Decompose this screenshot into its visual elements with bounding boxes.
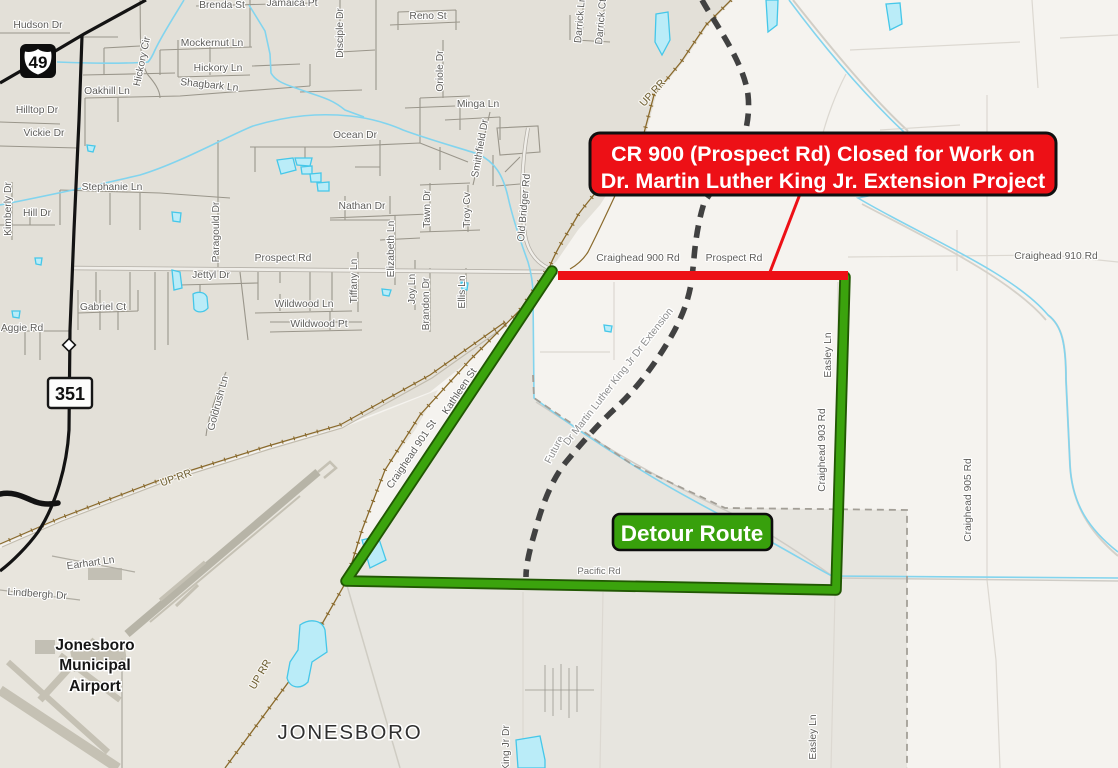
svg-text:Easley Ln: Easley Ln [823,332,834,377]
svg-text:Oriole Dr: Oriole Dr [435,50,446,92]
svg-text:Prospect Rd: Prospect Rd [255,253,312,264]
svg-text:Brandon Dr: Brandon Dr [421,277,432,330]
svg-text:Detour Route: Detour Route [621,521,764,546]
svg-text:Paragould Dr: Paragould Dr [211,201,222,262]
svg-text:Jamaica Pt: Jamaica Pt [267,0,318,9]
svg-text:Nathan Dr: Nathan Dr [339,201,387,212]
svg-text:Tiffany Ln: Tiffany Ln [349,258,360,303]
svg-text:Reno St: Reno St [409,11,446,22]
svg-text:Dr. Martin Luther King Jr. Ext: Dr. Martin Luther King Jr. Extension Pro… [601,169,1045,193]
svg-text:Hilltop Dr: Hilltop Dr [16,105,59,116]
svg-text:Aggie Rd: Aggie Rd [1,323,44,334]
svg-text:Tawn Dr: Tawn Dr [422,190,433,228]
svg-text:Elizabeth Ln: Elizabeth Ln [386,220,397,277]
svg-text:Pacific Rd: Pacific Rd [577,566,620,577]
svg-text:Craighead 910 Rd: Craighead 910 Rd [1014,251,1098,262]
svg-text:Wildwood Ln: Wildwood Ln [275,299,334,310]
svg-text:Prospect Rd: Prospect Rd [706,253,763,264]
svg-text:Joy Ln: Joy Ln [407,274,418,305]
svg-text:Hill Dr: Hill Dr [23,208,52,219]
svg-text:Hudson Dr: Hudson Dr [13,20,63,31]
svg-text:Mockernut Ln: Mockernut Ln [181,38,244,49]
svg-text:Jonesboro: Jonesboro [55,637,134,654]
svg-text:JONESBORO: JONESBORO [278,721,423,744]
svg-text:Kimberly Dr: Kimberly Dr [3,182,14,236]
svg-text:CR 900 (Prospect Rd) Closed fo: CR 900 (Prospect Rd) Closed for Work on [611,142,1035,166]
svg-text:Ellis Ln: Ellis Ln [457,275,468,308]
svg-text:Troy Cv: Troy Cv [462,191,473,228]
svg-text:351: 351 [55,384,85,404]
svg-text:49: 49 [29,53,48,72]
svg-text:Stephanie Ln: Stephanie Ln [82,182,143,193]
svg-text:Wildwood Pt: Wildwood Pt [290,319,347,330]
svg-text:Vickie Dr: Vickie Dr [23,128,65,139]
svg-text:Hickory Ln: Hickory Ln [194,63,243,74]
svg-text:Brenda St: Brenda St [199,0,245,11]
svg-text:Oakhill Ln: Oakhill Ln [84,86,130,97]
svg-text:Minga Ln: Minga Ln [457,99,500,110]
svg-text:King Jr Dr: King Jr Dr [501,725,512,768]
svg-text:Craighead 905 Rd: Craighead 905 Rd [963,458,974,542]
svg-text:Disciple Dr: Disciple Dr [335,8,346,58]
svg-text:Craighead 900 Rd: Craighead 900 Rd [596,253,680,264]
svg-text:Municipal: Municipal [59,657,130,674]
svg-text:Airport: Airport [69,678,121,695]
svg-text:Jettyl Dr: Jettyl Dr [192,270,230,281]
svg-text:Gabriel Ct: Gabriel Ct [80,302,126,313]
svg-text:Craighead 903 Rd: Craighead 903 Rd [817,408,828,492]
svg-text:Ocean Dr: Ocean Dr [333,130,378,141]
svg-text:Easley Ln: Easley Ln [808,714,819,759]
